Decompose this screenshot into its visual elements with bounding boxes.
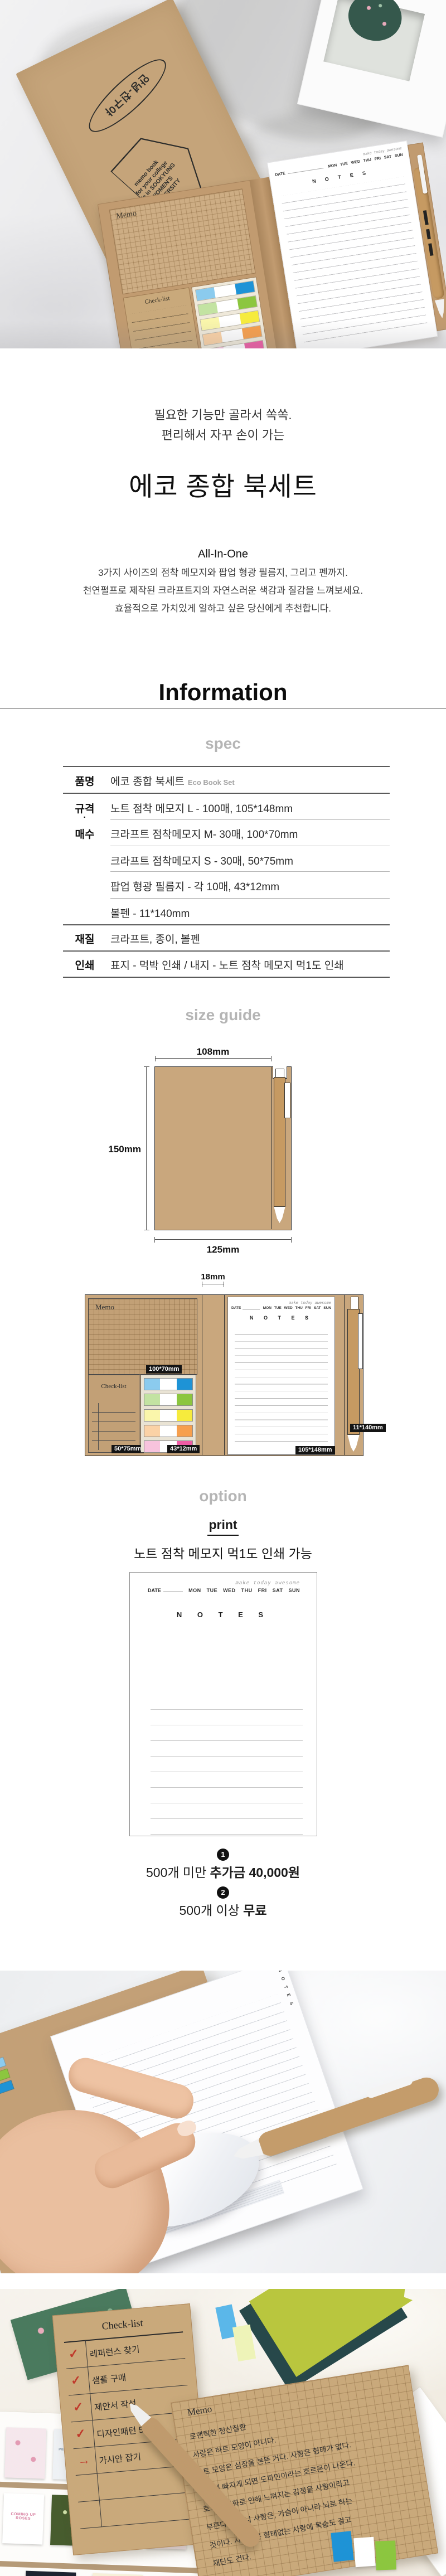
spec-name-en: Eco Book Set <box>188 778 235 787</box>
date-line <box>243 1306 260 1309</box>
table-subline <box>110 871 390 872</box>
memo-label: Memo <box>116 210 138 222</box>
pen-slot-divider <box>344 1295 345 1455</box>
front-width-label: 108mm <box>0 1046 436 1057</box>
notes-title: N O T E S <box>228 1315 334 1321</box>
notes-title: N O T E S <box>130 1610 317 1619</box>
spec-size-row: 크라프트 점착메모지 M- 30매, 100*70mm <box>110 826 298 841</box>
front-height-label: 150mm <box>103 1144 141 1155</box>
pen-button <box>351 1297 358 1310</box>
spec-value-print: 표지 - 먹박 인쇄 / 내지 - 노트 점착 메모지 먹1도 인쇄 <box>110 957 344 972</box>
size-guide-heading: size guide <box>0 1006 446 1024</box>
spec-value-name: 에코 종합 북세트Eco Book Set <box>110 773 235 788</box>
print-subheading-wrap: print <box>0 1517 446 1532</box>
front-total-width-label: 125mm <box>0 1244 446 1255</box>
memo-grid-pad: Memo <box>109 188 256 294</box>
intro-subtitle-2: 편리해서 자꾸 손이 가는 <box>0 425 446 443</box>
memo-label: Memo <box>95 1303 114 1312</box>
flag-tab-white <box>353 2537 376 2567</box>
flags-size-chip: 43*12mm <box>167 1445 200 1453</box>
checklist-label: Check-list <box>89 1383 139 1390</box>
pen-body <box>274 1077 285 1207</box>
check-icon: ✓ <box>70 2373 82 2389</box>
spine-line <box>202 1295 202 1455</box>
pen-clip <box>284 1083 290 1118</box>
flag-row-green <box>144 1394 193 1406</box>
date-label: DATE <box>148 1588 161 1593</box>
spec-size-row: 팝업 형광 필름지 - 각 10매, 43*12mm <box>110 879 279 894</box>
option-heading: option <box>0 1487 446 1505</box>
price-badge-1: 1 <box>217 1849 229 1861</box>
spec-label-dot: · <box>63 813 106 822</box>
diagram-checklist-pad: Check-list <box>88 1375 139 1453</box>
spine-line <box>224 1295 225 1455</box>
spec-name-kr: 에코 종합 북세트 <box>110 776 185 788</box>
price-prefix: 500개 이상 <box>180 1903 244 1918</box>
table-line <box>63 793 390 794</box>
ruled-lines <box>235 1327 328 1444</box>
magazine-cover <box>4 2427 46 2478</box>
product-title: 에코 종합 북세트 <box>0 465 446 503</box>
tote-bag <box>25 2571 76 2576</box>
checklist-column-line <box>98 1403 99 1450</box>
intro-desc-1: 3가지 사이즈의 점착 메모지와 팝업 형광 필름지, 그리고 펜까지. <box>0 565 446 579</box>
flag-row-yellow <box>144 1409 193 1422</box>
table-line <box>63 950 390 952</box>
notes-size-chip: 105*148mm <box>295 1446 335 1454</box>
checklist-size-chip: 50*75mm <box>111 1445 144 1453</box>
print-subheading: print <box>207 1517 238 1536</box>
table-line <box>63 766 390 767</box>
pen-clip <box>358 1313 363 1369</box>
date-row: DATE MON TUE WED THU FRI SAT SUN <box>231 1306 331 1310</box>
date-row: DATE MON TUE WED THU FRI SAT SUN <box>148 1588 300 1593</box>
spec-value-material: 크라프트, 종이, 볼펜 <box>110 931 200 946</box>
date-line <box>287 166 323 174</box>
spec-label-count: 매수 <box>63 826 106 841</box>
option-description: 노트 점착 메모지 먹1도 인쇄 가능 <box>0 1543 446 1562</box>
check-icon: ✓ <box>72 2399 84 2415</box>
date-line <box>163 1588 183 1592</box>
pen-size-chip: 11*140mm <box>350 1424 386 1432</box>
pen-tip <box>434 299 446 319</box>
check-icon: ✓ <box>68 2346 80 2362</box>
magazine-cover-coming-up-roses: COMING UP ROSES <box>2 2493 44 2544</box>
pad-tagline: make today awesome <box>235 1580 300 1586</box>
spec-size-row: 볼펜 - 11*140mm <box>110 905 190 920</box>
all-in-one-badge: All-In-One <box>0 548 446 561</box>
table-line <box>63 977 390 978</box>
spec-label-material: 재질 <box>63 931 106 946</box>
product-detail-page: 안녕-친구야 memo book for your college life i… <box>0 0 446 2576</box>
table-line <box>63 924 390 925</box>
intro-desc-2: 천연펄프로 제작된 크라프트지의 자연스러운 색감과 질감을 느껴보세요. <box>0 583 446 596</box>
flag-row-orange <box>144 1425 193 1437</box>
checklist-item-text: 샘플 구매 <box>91 2371 127 2386</box>
date-label: DATE <box>275 172 285 177</box>
checklist-item-text: 가시안 잡기 <box>99 2450 142 2467</box>
front-view-book <box>154 1066 292 1230</box>
front-width-measure <box>155 1058 272 1059</box>
spine-width-label: 18mm <box>196 1272 230 1282</box>
diagram-notes-pad: make today awesome DATE MON TUE WED THU … <box>227 1297 335 1455</box>
fabric-shadow <box>0 321 446 348</box>
detail-photo-hand: N O T E S <box>0 1971 446 2273</box>
mini-flag <box>0 2080 14 2094</box>
day-labels: MON TUE WED THU FRI SAT SUN <box>263 1306 331 1310</box>
spec-size-row: 노트 점착 메모지 L - 100매, 105*148mm <box>110 801 293 816</box>
diagram-memo-pad: Memo <box>88 1298 197 1375</box>
flag-tab-green <box>375 2540 396 2570</box>
ruled-lines <box>151 1694 303 1836</box>
front-height-measure <box>146 1066 147 1230</box>
pen-clip <box>366 2075 414 2099</box>
price-bold: 추가금 40,000원 <box>210 1865 300 1880</box>
section-divider <box>0 709 446 709</box>
intro-subtitle-1: 필요한 기능만 골라서 쏙쏙. <box>0 405 446 423</box>
date-label: DATE <box>231 1306 241 1310</box>
price-badge-2: 2 <box>217 1886 229 1899</box>
spine-measure <box>202 1284 224 1284</box>
option-notes-pad: make today awesome DATE MON TUE WED THU … <box>129 1572 317 1836</box>
handwritten-memo-note: Memo 로맨틱한 정신질환 사랑은 하트 모양이 아니다. 하트 모양은 심장… <box>171 2365 438 2576</box>
pen-slot-divider <box>272 1067 272 1229</box>
front-total-width-measure <box>154 1239 292 1240</box>
flag-tab-blue <box>331 2531 353 2562</box>
memo-title: Memo <box>187 2404 213 2419</box>
checklist-item-text: 레퍼런스 찾기 <box>89 2342 140 2360</box>
table-subline <box>110 819 390 820</box>
price-line-1: 500개 미만 추가금 40,000원 <box>0 1862 446 1881</box>
spec-label-print: 인쇄 <box>63 957 106 972</box>
pad-tagline: make today awesome <box>289 1301 331 1305</box>
spec-heading: spec <box>0 735 446 753</box>
arrow-icon: → <box>77 2453 90 2468</box>
intro-desc-3: 효율적으로 가치있게 일하고 싶은 당신에게 추천합니다. <box>0 600 446 614</box>
price-line-2: 500개 이상 무료 <box>0 1900 446 1919</box>
check-icon: ✓ <box>75 2426 86 2442</box>
spec-label-name: 품명 <box>63 773 106 788</box>
table-subline <box>110 846 390 846</box>
tote-bag <box>91 2573 143 2576</box>
oval-stamp: 안녕-친구야 <box>80 50 175 142</box>
flag-row-blue <box>144 1378 193 1390</box>
price-bold: 무료 <box>243 1903 266 1918</box>
table-subline <box>110 898 390 899</box>
hero-photo: 안녕-친구야 memo book for your college life i… <box>0 0 446 348</box>
information-heading: Information <box>0 679 446 706</box>
diagram-flags-panel <box>140 1375 196 1453</box>
price-prefix: 500개 미만 <box>146 1865 210 1880</box>
day-labels: MON TUE WED THU FRI SAT SUN <box>188 1588 300 1593</box>
spec-size-row: 크라프트 점착메모지 S - 30매, 50*75mm <box>110 853 293 868</box>
memo-size-chip: 100*70mm <box>146 1365 182 1374</box>
detail-photo-desk: PRINTED SQUARE COMING UP ROSES DATE Chec… <box>0 2289 446 2576</box>
